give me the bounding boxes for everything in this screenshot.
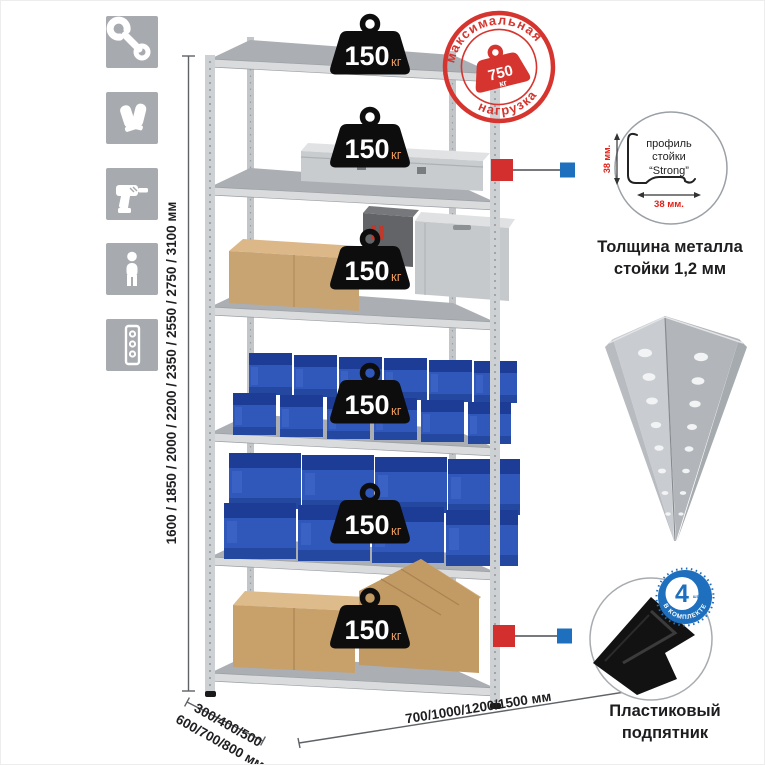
- profile-callout-connector: [491, 159, 575, 181]
- shelf-load-value: 150: [344, 390, 389, 420]
- profile-dim-horizontal-label: 38 мм.: [654, 199, 684, 210]
- plastic-foot-caption-line1: Пластиковый: [579, 701, 751, 723]
- callout-marker-red: [491, 159, 513, 181]
- plastic-foot-caption-line2: подпятник: [579, 723, 751, 745]
- metal-thickness-caption-line2: стойки 1,2 мм: [584, 259, 756, 281]
- upright-post-icon: [106, 319, 158, 371]
- shelf-load-unit: кг: [391, 628, 402, 643]
- icon-tile-gloves: [106, 92, 158, 144]
- shelf-load-value: 150: [344, 134, 389, 164]
- person-icon: [106, 243, 158, 295]
- badge-side-text: штуки: [693, 594, 706, 599]
- metal-thickness-caption-line1: Толщина металла: [584, 237, 756, 259]
- callout-marker-blue: [557, 629, 572, 644]
- shelf-load-value: 150: [344, 256, 389, 286]
- badge-count: 4: [675, 580, 689, 608]
- plastic-foot-caption: Пластиковый подпятник: [579, 701, 751, 745]
- upright-post-photo: [605, 316, 747, 541]
- height-dimension: [182, 56, 195, 691]
- icon-tile-post: [106, 319, 158, 371]
- foot-callout-connector: [493, 625, 572, 647]
- product-infographic: 150 кг 150 кг 150 кг 150 кг 150 кг 150 к…: [0, 0, 765, 765]
- shelf-load-value: 150: [344, 41, 389, 71]
- height-dimension-label: 1600 / 1850 / 2000 / 2200 / 2350 / 2550 …: [164, 202, 179, 545]
- shelf-load-value: 150: [344, 615, 389, 645]
- shelf-load-unit: кг: [391, 147, 402, 162]
- profile-dim-vertical-label: 38 мм.: [602, 145, 612, 173]
- wrench-icon: [106, 16, 158, 68]
- icon-tile-drill: [106, 168, 158, 220]
- profile-text-line1: профиль: [646, 138, 692, 150]
- post-profile-callout: 38 мм. 38 мм. профиль стойки “Strong”: [602, 112, 727, 224]
- shelf-load-value: 150: [344, 510, 389, 540]
- plastic-foot-left: [205, 691, 216, 697]
- callout-marker-blue: [560, 163, 575, 178]
- metal-thickness-caption: Толщина металла стойки 1,2 мм: [584, 237, 756, 281]
- gloves-icon: [106, 92, 158, 144]
- profile-text-line2: стойки: [652, 151, 686, 163]
- icon-tile-person: [106, 243, 158, 295]
- shelf-load-unit: кг: [391, 54, 402, 69]
- callout-marker-red: [493, 625, 515, 647]
- shelf-load-unit: кг: [391, 403, 402, 418]
- profile-text-line3: “Strong”: [649, 165, 689, 177]
- shelf-load-unit: кг: [391, 523, 402, 538]
- shelf-load-unit: кг: [391, 269, 402, 284]
- drill-icon: [106, 168, 158, 220]
- icon-tile-assembly: [106, 16, 158, 68]
